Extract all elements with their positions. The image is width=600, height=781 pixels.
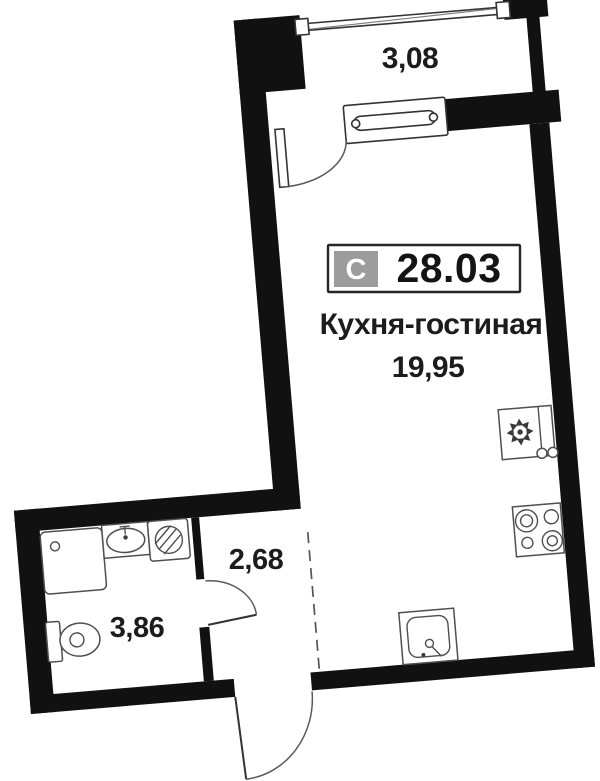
balcony-door-icon	[273, 97, 451, 187]
hallway-area-label: 2,68	[229, 544, 284, 576]
cooktop-icon	[512, 503, 564, 557]
entrance-door-arc	[239, 691, 319, 779]
room-area-label: 19,95	[392, 351, 465, 384]
wall-bathroom-divider-lower	[199, 627, 213, 682]
unit-area-badge: С 28.03	[328, 245, 520, 292]
bathroom-area-label: 3,86	[110, 612, 165, 644]
wall-bathroom-divider-upper	[191, 517, 204, 579]
entrance-door-icon	[235, 690, 319, 779]
bathroom-door-leaf	[208, 615, 257, 625]
floor-plan-page: 3,08 С 28.03 Кухня-гостиная 19,95 2,68 3…	[0, 0, 600, 781]
unit-type-label: С	[346, 254, 367, 286]
entrance-door-leaf	[235, 696, 246, 779]
fridge-icon	[498, 405, 558, 462]
wall-right-main	[529, 123, 595, 669]
wall-loggia-right	[526, 15, 545, 94]
loggia-window-icon	[295, 1, 511, 35]
bathroom-door-arc	[205, 577, 256, 619]
toilet-icon	[45, 618, 101, 662]
washing-machine-icon	[147, 518, 190, 561]
window-end-nub-left	[295, 18, 309, 35]
floor-plan-drawing: 3,08 С 28.03 Кухня-гостиная 19,95 2,68 3…	[0, 0, 600, 781]
kitchen-sink-icon	[399, 608, 458, 664]
balcony-door-leaf	[275, 129, 289, 188]
faucet-knob-icon	[537, 448, 548, 459]
total-area-label: 28.03	[396, 245, 501, 291]
dimension-label-loggia: 3,08	[382, 42, 438, 75]
room-name-label: Кухня-гостиная	[320, 308, 543, 341]
faucet-knob-icon	[548, 447, 559, 458]
bathroom-door-icon	[204, 577, 257, 625]
zone-boundary-dashed-line	[308, 532, 320, 670]
shower-icon	[40, 527, 107, 594]
window-end-nub-right	[496, 1, 510, 18]
wall-bottom-left	[29, 679, 235, 714]
plan-geometry	[0, 0, 600, 781]
balcony-door-arc	[281, 141, 349, 187]
washbasin-icon	[101, 522, 150, 559]
